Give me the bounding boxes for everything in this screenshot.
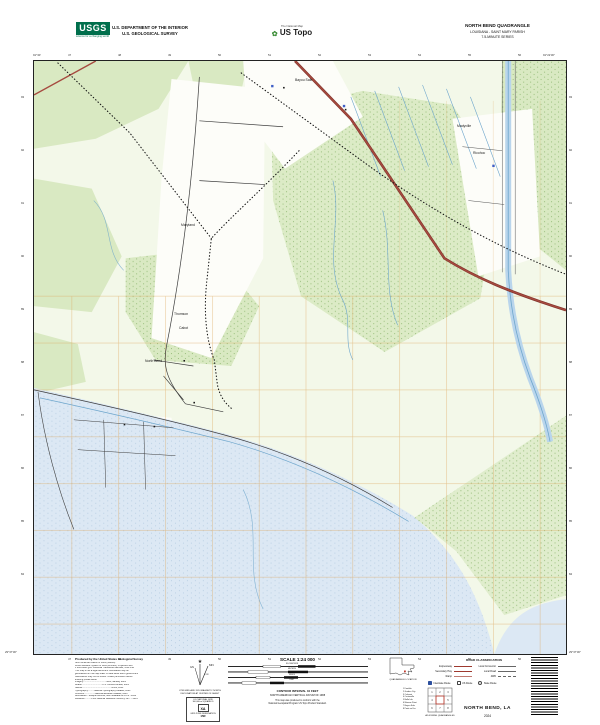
- grid-tick-top: 52: [318, 53, 321, 57]
- grid-tick-right: 88: [569, 360, 572, 364]
- quad-subtitle: LOUISIANA - SAINT MARY PARISH: [410, 30, 585, 34]
- vertical-datum: NORTH AMERICAN VERTICAL DATUM OF 1988: [230, 694, 365, 697]
- grid-tick-top: 47: [68, 53, 71, 57]
- grid-tick-right: 93: [569, 95, 572, 99]
- usgs-logo: USGS: [76, 22, 110, 35]
- dept-line1: U.S. DEPARTMENT OF THE INTERIOR: [108, 25, 192, 31]
- road-class-label: Expressway: [428, 665, 454, 668]
- declination-diagram: ★ MN GN 0°35': [178, 657, 222, 689]
- grid-tick-left: 91: [21, 201, 24, 205]
- grid-tick-top: 53: [368, 53, 371, 57]
- road-class-label: Secondary Hwy: [428, 670, 454, 673]
- produced-by-line: Produced by the United States Geological…: [75, 657, 187, 661]
- adjoining-quad-name: 8 Point au Fer: [403, 708, 425, 711]
- usng-square-id: XA: [198, 704, 209, 712]
- grid-tick-left: 88: [21, 360, 24, 364]
- corner-coord-bottom-right: 29°37'30": [569, 650, 581, 654]
- route-shield-legend: Interstate RouteUS RouteState Route: [428, 681, 532, 685]
- grid-tick-left: 87: [21, 413, 24, 417]
- state-locator-map: [388, 656, 416, 678]
- grid-tick-top: 51: [268, 53, 271, 57]
- road-class-sample: [498, 676, 516, 677]
- road-class-sample: [498, 666, 516, 667]
- adjoining-quad-list: 1 Franklin2 Garden City3 Calumet4 Center…: [403, 688, 425, 710]
- ustopo-brand: ✿ US Topo: [266, 28, 318, 38]
- grid-tick-right: 86: [569, 466, 572, 470]
- usng-zone: 15R: [187, 715, 219, 718]
- corner-coord-top-left: 91°30': [33, 53, 41, 57]
- grid-tick-right: 89: [569, 307, 572, 311]
- topo-map-body: [33, 60, 567, 655]
- topo-map-graphic: [34, 61, 566, 654]
- road-class-label: Local Road: [472, 670, 498, 673]
- grid-tick-right: 85: [569, 519, 572, 523]
- corner-coord-top-right: 91°22'30": [543, 53, 555, 57]
- contour-interval: CONTOUR INTERVAL 10 FEET: [230, 689, 365, 693]
- svg-text:0°35': 0°35': [204, 674, 210, 676]
- grid-tick-right: 84: [569, 572, 572, 576]
- interstate-shield-icon: [428, 681, 432, 685]
- quadrangle-title-block: NORTH BEND QUADRANGLE LOUISIANA - SAINT …: [410, 23, 585, 39]
- corner-coord-bottom-left: 29°37'30": [5, 650, 17, 654]
- svg-text:MN: MN: [209, 663, 214, 667]
- state-shield-icon: [478, 681, 482, 685]
- grid-tick-left: 90: [21, 254, 24, 258]
- scale-bars: [228, 663, 368, 687]
- grid-tick-left: 93: [21, 95, 24, 99]
- quad-series: 7.5-MINUTE SERIES: [410, 35, 585, 39]
- road-classification-rows: ExpresswayLocal ConnectorSecondary HwyLo…: [428, 664, 532, 679]
- grid-tick-left: 85: [21, 519, 24, 523]
- scale-unit-label: METERS: [288, 668, 296, 670]
- road-class-sample: [498, 671, 516, 672]
- grid-tick-left: 92: [21, 148, 24, 152]
- grid-tick-left: 86: [21, 466, 24, 470]
- credit-line: Wetlands...........FWS National Wetlands…: [75, 698, 187, 701]
- route-shield-label: US Route: [462, 682, 472, 685]
- quad-title: NORTH BEND QUADRANGLE: [410, 23, 585, 28]
- route-shield-label: Interstate Route: [434, 682, 451, 685]
- usng-box: U.S. NATIONAL GRID 100,000-m SQUARE ID X…: [186, 697, 220, 722]
- conformance-line2: National Geospatial Program US Topo Prod…: [230, 703, 365, 706]
- ustopo-logo: The National Map ✿ US Topo: [266, 24, 318, 38]
- quadrangle-location-caption: QUADRANGLE LOCATION: [381, 679, 425, 681]
- route-shield-item: US Route: [457, 681, 473, 685]
- ustopo-leaf-icon: ✿: [272, 31, 278, 38]
- scale-unit-label: FEET: [290, 679, 295, 681]
- grid-tick-left: 89: [21, 307, 24, 311]
- us-shield-icon: [457, 681, 461, 685]
- grid-tick-bottom: 53: [368, 657, 371, 661]
- route-shield-label: State Route: [484, 682, 497, 685]
- route-shield-item: State Route: [478, 681, 496, 685]
- grid-tick-top: 48: [118, 53, 121, 57]
- grid-tick-top: 55: [468, 53, 471, 57]
- road-class-label: 4WD: [472, 675, 498, 678]
- road-classification-title: ROAD CLASSIFICATION: [436, 658, 532, 662]
- scale-unit-label: MILES: [289, 674, 295, 676]
- grid-tick-bottom: 47: [68, 657, 71, 661]
- grid-tick-right: 91: [569, 201, 572, 205]
- road-class-sample: [454, 666, 472, 667]
- grid-tick-right: 87: [569, 413, 572, 417]
- grid-tick-right: 90: [569, 254, 572, 258]
- svg-text:★: ★: [198, 659, 203, 665]
- road-class-row: Ramp4WD: [428, 674, 532, 679]
- quad-location-marker: [404, 671, 406, 673]
- dept-line2: U.S. GEOLOGICAL SURVEY: [108, 31, 192, 37]
- grid-tick-right: 92: [569, 148, 572, 152]
- usgs-tagline: science for a changing world: [76, 35, 109, 38]
- grid-tick-top: 49: [168, 53, 171, 57]
- road-class-sample: [454, 671, 472, 672]
- usng-square-label: 100,000-m SQUARE ID: [187, 701, 219, 704]
- road-class-sample: [454, 676, 472, 677]
- scale-label: SCALE 1:24 000: [235, 657, 360, 662]
- road-class-label: Local Connector: [472, 665, 498, 668]
- grid-tick-top: 54: [418, 53, 421, 57]
- conformance-note: This map was produced to conform with th…: [230, 700, 365, 706]
- sheet-title: NORTH BEND, LA: [425, 706, 550, 711]
- grid-tick-top: 50: [218, 53, 221, 57]
- scale-unit-label: KILOMETERS: [286, 663, 298, 665]
- route-shield-item: Interstate Route: [428, 681, 451, 685]
- grid-tick-bottom: 54: [418, 657, 421, 661]
- department-header: U.S. DEPARTMENT OF THE INTERIOR U.S. GEO…: [108, 25, 192, 36]
- road-class-label: Ramp: [428, 675, 454, 678]
- sheet-year: 2024: [425, 714, 550, 718]
- grid-tick-top: 56: [518, 53, 521, 57]
- grid-tick-left: 84: [21, 572, 24, 576]
- svg-text:GN: GN: [190, 665, 194, 669]
